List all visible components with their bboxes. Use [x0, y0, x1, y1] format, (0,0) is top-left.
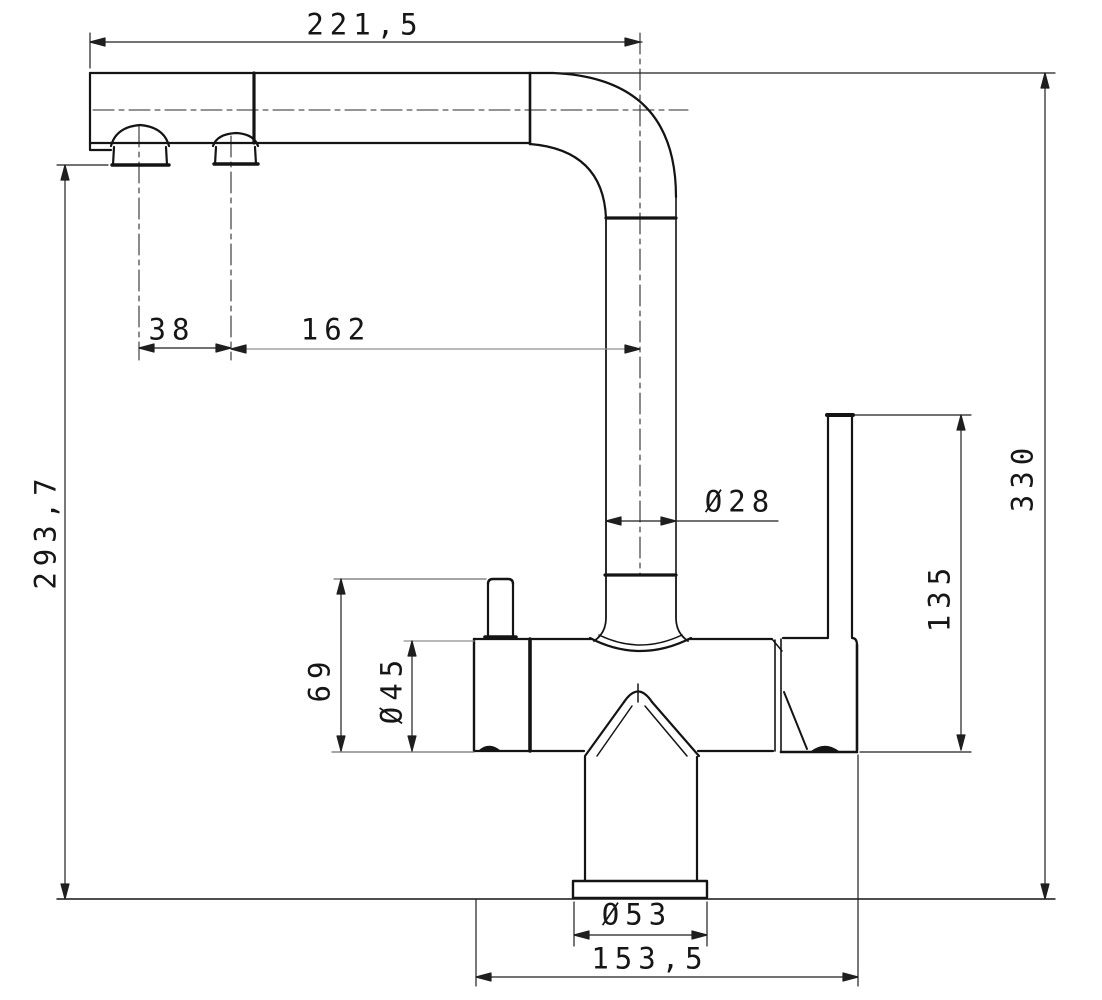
aerator-spacing-dim-label: 38: [149, 316, 196, 345]
pin-height-dim-label: 69: [306, 656, 335, 703]
riser-flare-left: [594, 575, 606, 641]
technical-drawing-canvas: 221,5 38 162 293,7 330 Ø28 135 69 Ø45 Ø5…: [0, 0, 1102, 1000]
dim-spray-to-riser: [231, 345, 640, 353]
bend-outer-curve: [553, 73, 676, 197]
riser-flare-right: [676, 575, 688, 641]
lever-handle: [781, 415, 857, 752]
faucet-line-drawing: [0, 0, 1102, 1000]
dim-pin-height: [332, 579, 486, 752]
dim-body-diameter: [404, 641, 474, 751]
handle-screw-dot: [811, 747, 839, 753]
cone-outer-left: [585, 702, 624, 756]
base-flange: [573, 881, 707, 898]
dim-overall-height: [553, 73, 1055, 899]
base-shank: [585, 684, 699, 881]
lever-height-dim-label: 135: [926, 562, 955, 632]
bend-outline: [530, 73, 676, 218]
base-diameter-dim-label: Ø53: [602, 901, 672, 930]
spout-outline: [90, 73, 553, 150]
overall-depth-dim-label: 153,5: [591, 945, 708, 974]
body-set-screw-dot: [479, 747, 500, 752]
dim-tip-height: [57, 165, 108, 899]
handle-lever-joint: [784, 692, 807, 749]
overall-height-dim-label: 330: [1009, 442, 1038, 512]
bend-inner-curve: [530, 144, 606, 218]
centerlines: [93, 33, 688, 575]
pin-top-cap: [488, 579, 513, 584]
tip-height-dim-label: 293,7: [32, 472, 61, 589]
saddle-inner-arc: [599, 635, 682, 645]
spout-diameter-dim-label: Ø28: [705, 488, 775, 517]
spout-reach-dim-label: 221,5: [306, 11, 423, 40]
spray-to-riser-dim-label: 162: [301, 316, 371, 345]
cone-outer-right: [652, 702, 699, 756]
spray-head-outlets: [111, 125, 258, 165]
filter-pin: [485, 579, 516, 637]
body-diameter-dim-label: Ø45: [378, 654, 407, 724]
handle-base-top: [783, 638, 857, 645]
cone-inner-right: [645, 706, 687, 756]
